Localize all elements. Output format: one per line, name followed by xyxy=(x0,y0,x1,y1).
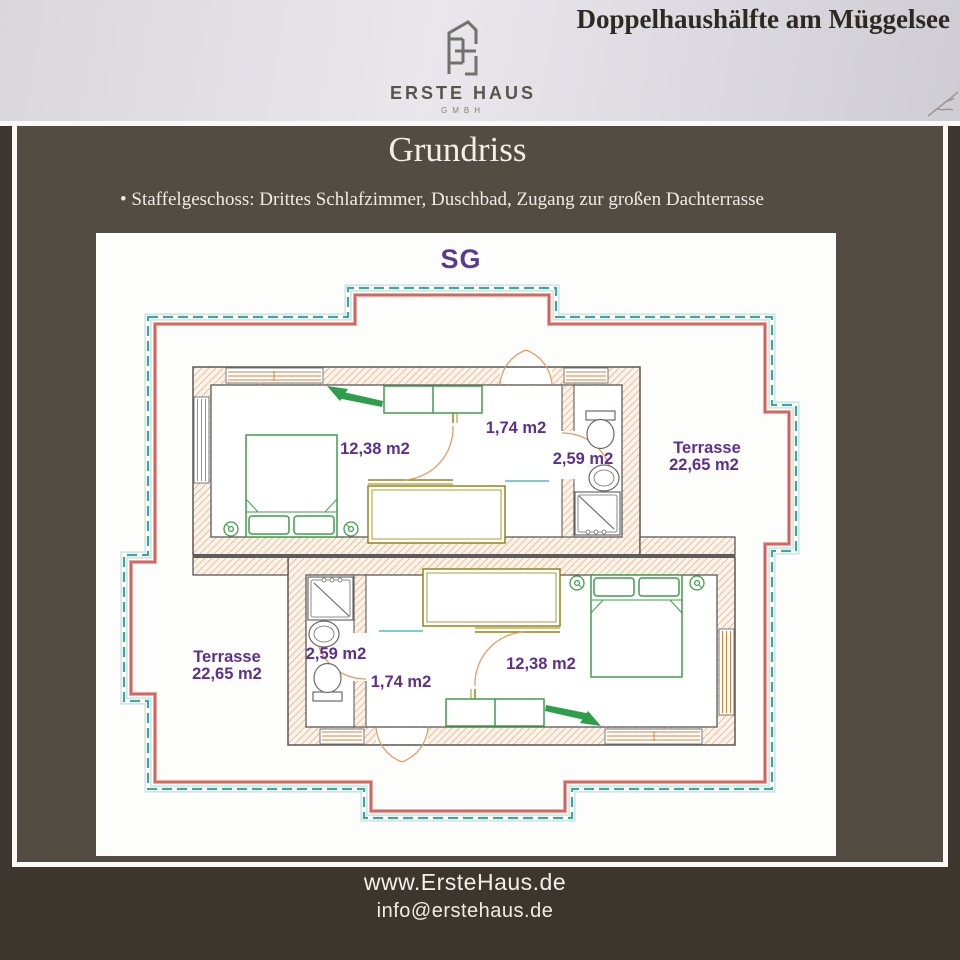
unit-top xyxy=(193,350,735,555)
unit-bottom xyxy=(193,557,735,762)
feature-bullet: • Staffelgeschoss: Drittes Schlafzimmer,… xyxy=(120,189,764,211)
floor-label: SG xyxy=(440,244,481,274)
house-monogram-icon xyxy=(443,20,483,76)
footer-website: www.ErsteHaus.de xyxy=(0,869,930,896)
wc-tank-icon xyxy=(586,411,615,420)
brand-name: ERSTE HAUS xyxy=(390,83,536,104)
room-area-label: 1,74 m2 xyxy=(486,419,547,437)
room-area-label: 12,38 m2 xyxy=(340,440,410,458)
twig-decoration xyxy=(926,90,960,118)
room-area-label: 12,38 m2 xyxy=(506,655,576,673)
room-area-label: 2,59 m2 xyxy=(306,645,367,663)
wc-icon xyxy=(587,420,614,449)
terrace-area-label: 22,65 m2 xyxy=(669,456,739,474)
bed-icon xyxy=(246,435,337,537)
terrace-label: Terrasse xyxy=(193,648,261,666)
banner-title: Doppelhaushälfte am Müggelsee xyxy=(577,4,951,35)
entry-opening xyxy=(500,368,552,384)
floor-plan-svg: SG 12,38 m2 1,74 m2 2,59 m2 Terrasse 22,… xyxy=(96,233,836,856)
brand-logo: ERSTE HAUS GMBH xyxy=(390,20,536,115)
flyer-page: ERSTE HAUS GMBH Doppelhaushälfte am Mügg… xyxy=(0,0,960,960)
terrace-label: Terrasse xyxy=(673,439,741,457)
room-area-label: 2,59 m2 xyxy=(553,450,614,468)
room-area-label: 1,74 m2 xyxy=(371,673,432,691)
wardrobe-icon xyxy=(384,386,482,413)
brand-sub: GMBH xyxy=(390,106,536,115)
terrace-area-label: 22,65 m2 xyxy=(192,665,262,683)
floorplan-panel: SG 12,38 m2 1,74 m2 2,59 m2 Terrasse 22,… xyxy=(96,233,836,856)
banner: ERSTE HAUS GMBH Doppelhaushälfte am Mügg… xyxy=(0,0,960,126)
page-title: Grundriss xyxy=(0,130,915,170)
footer-email: info@erstehaus.de xyxy=(0,900,930,923)
